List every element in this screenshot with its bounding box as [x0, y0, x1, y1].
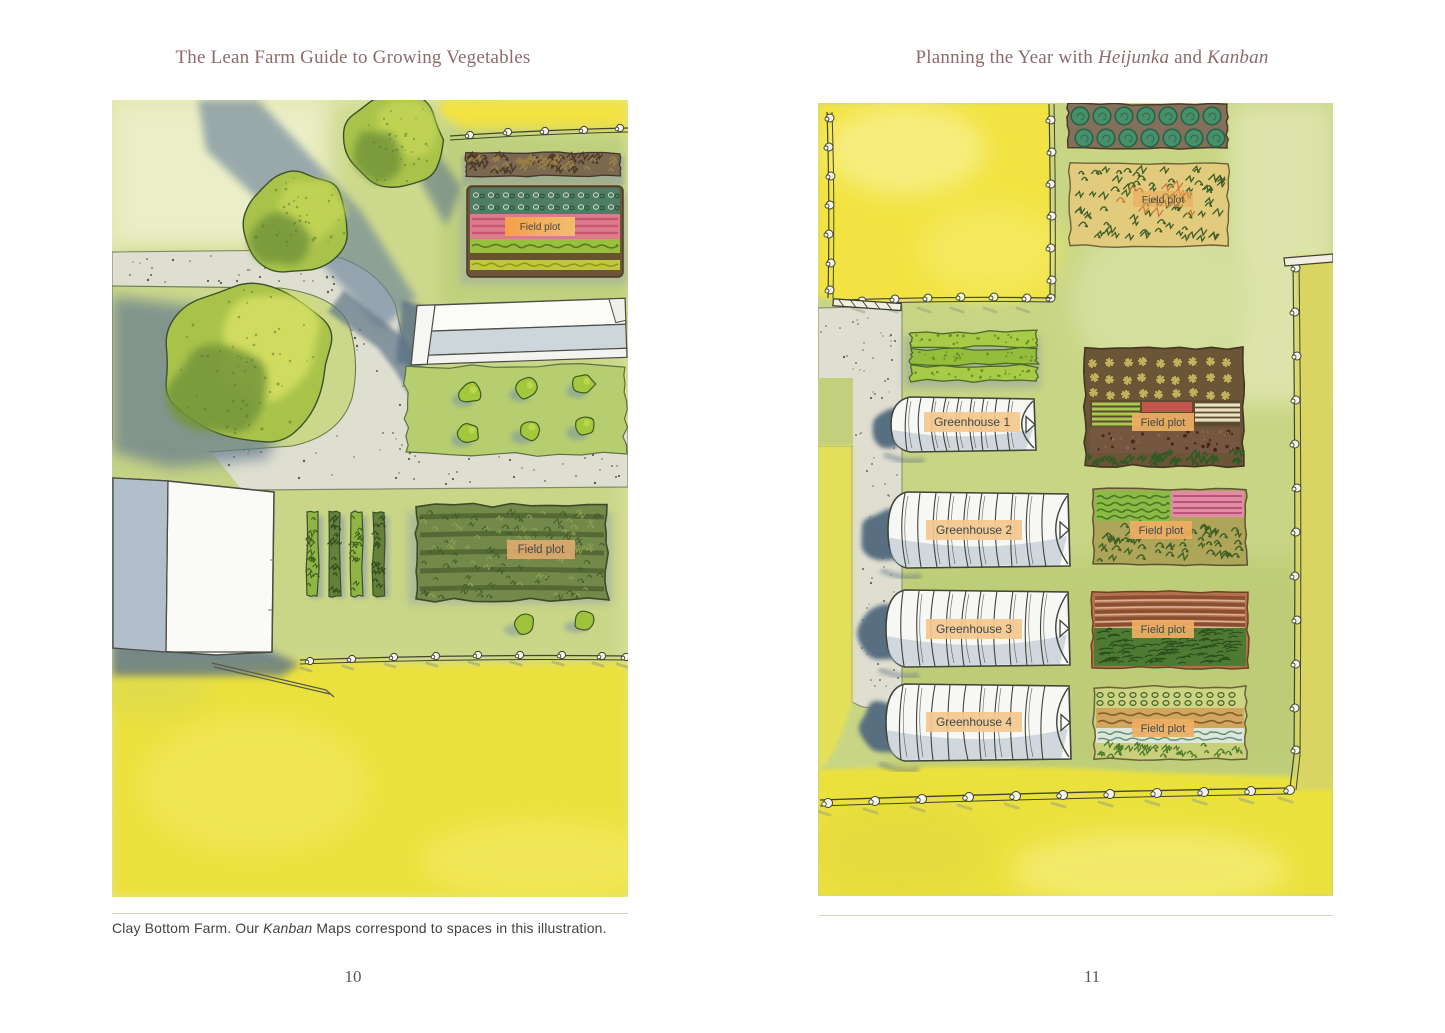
svg-text:Field plot: Field plot: [1139, 525, 1184, 537]
svg-text:Greenhouse 1: Greenhouse 1: [934, 415, 1010, 429]
svg-text:Field plot: Field plot: [1141, 624, 1186, 636]
svg-text:Field plot: Field plot: [1142, 194, 1185, 206]
svg-text:Greenhouse 4: Greenhouse 4: [936, 715, 1012, 729]
svg-text:Field plot: Field plot: [1141, 417, 1186, 429]
svg-text:Field plot: Field plot: [520, 222, 561, 233]
svg-text:Greenhouse 3: Greenhouse 3: [936, 622, 1012, 636]
svg-text:Greenhouse 2: Greenhouse 2: [936, 523, 1012, 537]
svg-text:Field plot: Field plot: [518, 544, 565, 556]
svg-text:Field plot: Field plot: [1141, 723, 1186, 735]
